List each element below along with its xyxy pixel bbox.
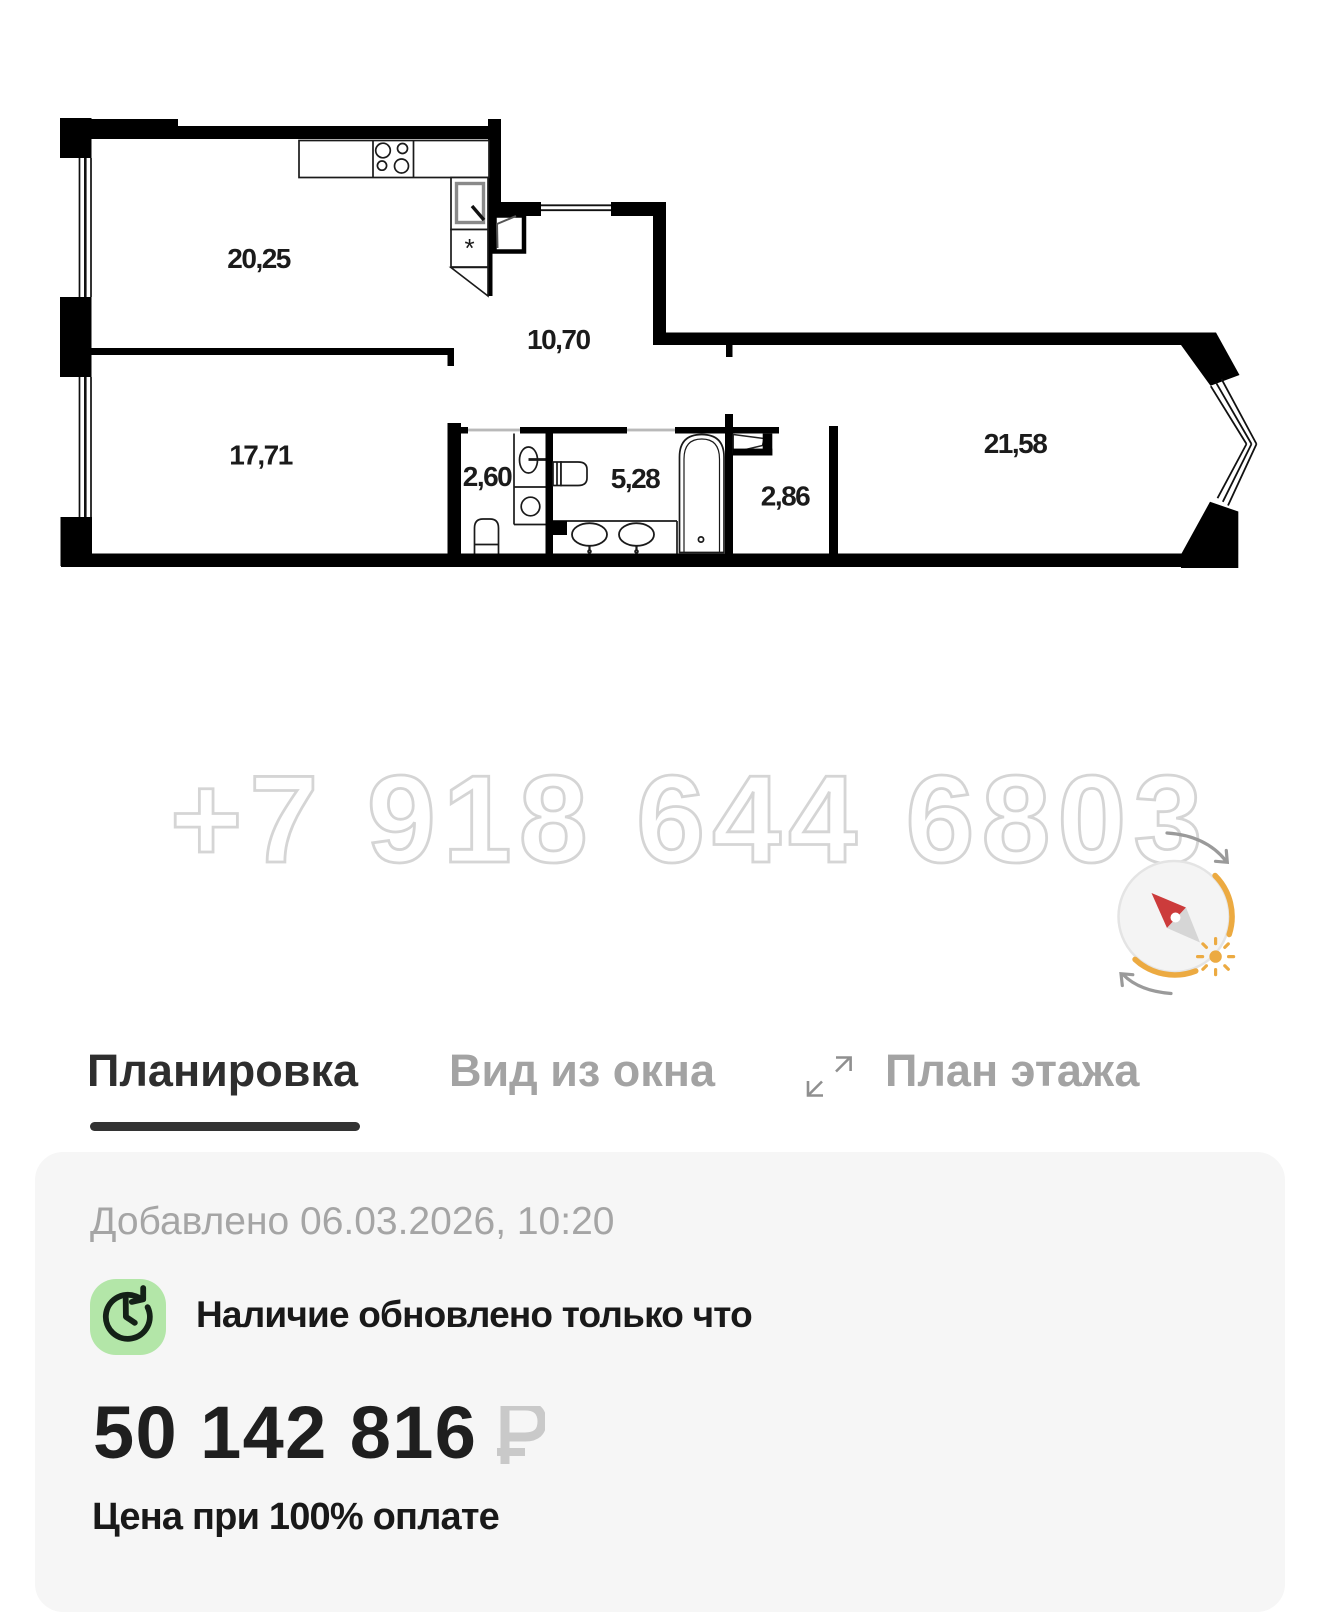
- svg-text:17,71: 17,71: [229, 440, 292, 471]
- svg-text:*: *: [464, 233, 474, 263]
- svg-text:2,60: 2,60: [463, 461, 512, 492]
- svg-text:10,70: 10,70: [527, 324, 590, 355]
- svg-text:5,28: 5,28: [611, 463, 660, 494]
- svg-text:2,86: 2,86: [761, 481, 810, 512]
- svg-text:21,58: 21,58: [984, 428, 1047, 459]
- svg-text:20,25: 20,25: [227, 243, 290, 274]
